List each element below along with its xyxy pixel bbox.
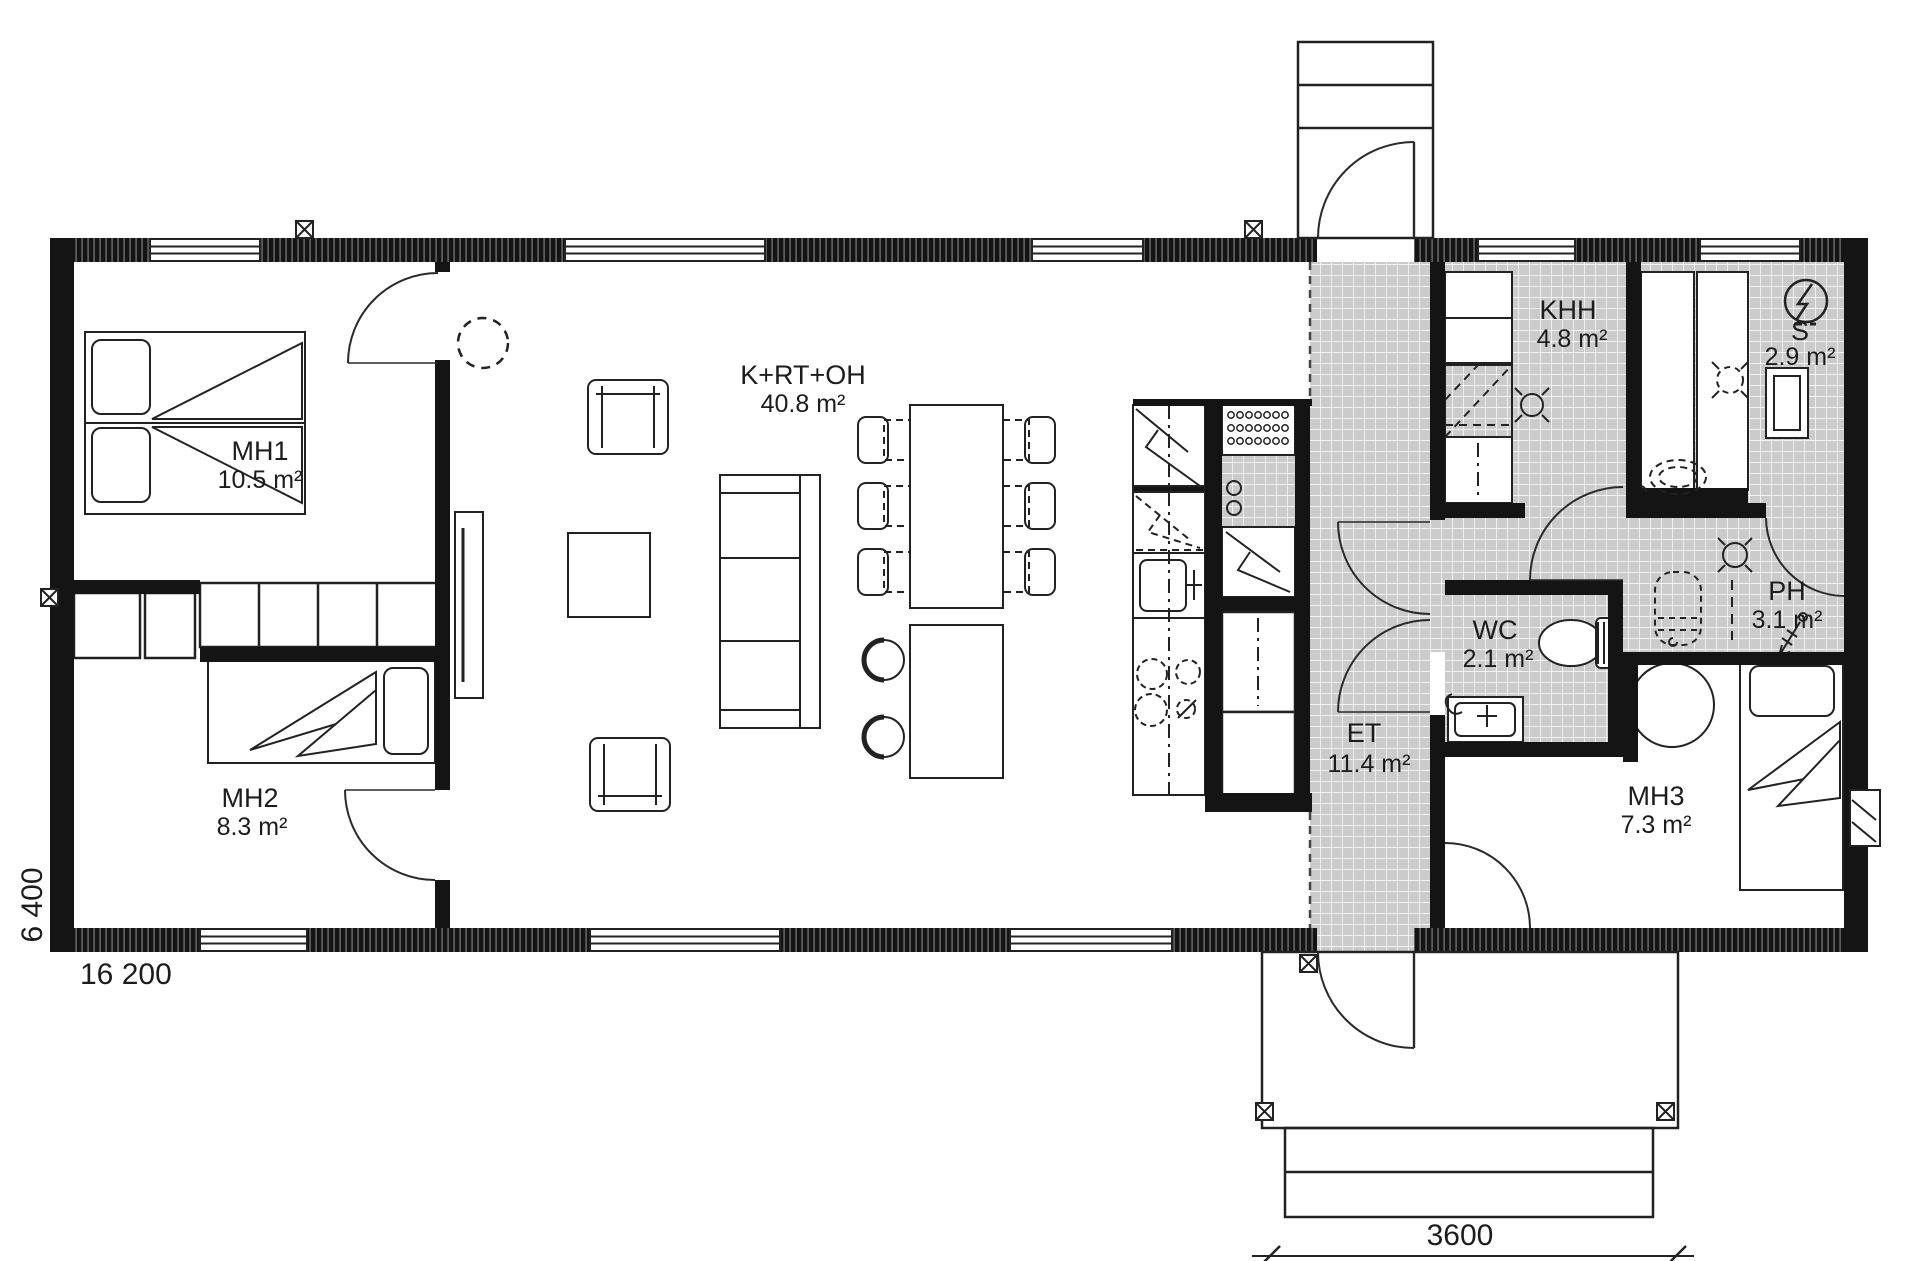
pillow — [92, 340, 150, 414]
svg-text:MH3: MH3 — [1627, 781, 1684, 811]
svg-text:7.3 m²: 7.3 m² — [1621, 811, 1692, 839]
utility-cabinet — [1445, 437, 1512, 503]
wall-closet-bottom — [200, 647, 450, 662]
post-marker-icon — [296, 221, 313, 238]
kitchen-right-wall — [1295, 405, 1310, 812]
kitchen-top-line — [1133, 399, 1312, 406]
wall-wc-bottom — [1445, 742, 1608, 757]
wall-mh1-mh2 — [74, 580, 200, 594]
svg-text:3.1 m²: 3.1 m² — [1752, 606, 1823, 634]
post-marker-icon — [1256, 1103, 1273, 1120]
hall-closets — [1222, 612, 1295, 800]
kitchen-divider-wall — [1205, 405, 1222, 795]
entry-porch-top — [1298, 42, 1433, 238]
kitchen-bottom-wall — [1205, 793, 1312, 812]
svg-text:2.1 m²: 2.1 m² — [1463, 645, 1534, 673]
room-label-mh2: MH2 8.3 m² — [217, 783, 288, 841]
wardrobe-row-mh1 — [200, 583, 437, 647]
wall-sauna-bottom — [1626, 503, 1766, 518]
post-marker-icon — [1245, 221, 1262, 238]
window-bottom-living — [590, 929, 780, 951]
pillow — [92, 428, 150, 502]
window-bottom-hall — [1010, 929, 1172, 951]
dishwasher — [1222, 527, 1295, 597]
wall — [435, 880, 450, 928]
window-top-mh1 — [150, 239, 260, 261]
sauna-bench — [1641, 272, 1694, 490]
dim-6400: 6 400 — [16, 867, 49, 942]
tv-bench — [455, 512, 483, 698]
window-top-khh — [1478, 239, 1575, 261]
svg-text:11.4 m²: 11.4 m² — [1328, 750, 1411, 778]
wall-bedrooms-living — [435, 360, 450, 790]
post-marker-icon — [41, 589, 58, 606]
wall-mh3-nook — [1623, 652, 1638, 762]
svg-text:4.8 m²: 4.8 m² — [1537, 325, 1608, 353]
pillow — [384, 668, 428, 754]
bar-table — [910, 625, 1003, 778]
svg-text:PH: PH — [1768, 576, 1806, 606]
wall-wc-top — [1445, 580, 1623, 595]
floor-plan-svg: MH1 10.5 m² MH2 8.3 m² K+RT+OH 40.8 m² E… — [0, 0, 1920, 1261]
svg-text:2.9 m²: 2.9 m² — [1765, 343, 1836, 371]
svg-text:K+RT+OH: K+RT+OH — [740, 360, 866, 390]
toilet — [1539, 618, 1618, 668]
armchair-2 — [590, 738, 670, 811]
svg-text:10.5 m²: 10.5 m² — [218, 466, 303, 494]
exterior-wall-bottom — [50, 928, 1868, 952]
entry-door-gap-top — [1317, 238, 1414, 262]
kitchen-block-band — [1222, 597, 1295, 612]
svg-text:MH1: MH1 — [231, 436, 288, 466]
svg-text:WC: WC — [1473, 615, 1518, 645]
wc-sink — [1446, 694, 1523, 742]
room-label-mh3: MH3 7.3 m² — [1621, 781, 1692, 839]
post-marker-icon — [1657, 1103, 1674, 1120]
wall-khh-sauna — [1626, 262, 1641, 518]
window-top-sauna — [1700, 239, 1800, 261]
coffee-table — [568, 533, 650, 617]
pillow — [1750, 666, 1834, 716]
svg-text:ET: ET — [1347, 718, 1382, 748]
svg-text:3600: 3600 — [1427, 1219, 1494, 1252]
dining-table — [910, 405, 1003, 608]
entry-door-gap-bottom — [1317, 928, 1414, 952]
svg-text:40.8 m²: 40.8 m² — [761, 390, 846, 418]
utility-counter — [1445, 272, 1512, 363]
kitchen-niche-tile — [1222, 455, 1295, 527]
wall-ph-mh3 — [1623, 652, 1844, 665]
wardrobe-mh2 — [74, 593, 195, 658]
window-top-kitchen — [1032, 239, 1143, 261]
window-top-living — [565, 239, 765, 261]
vent-marker-icon — [1850, 790, 1880, 846]
round-table — [1630, 663, 1714, 747]
post-marker-icon — [1300, 955, 1317, 972]
wall-wc-right — [1608, 580, 1623, 757]
dim-16200: 16 200 — [80, 958, 172, 991]
sofa — [720, 475, 820, 728]
wall-corridor-right-upper — [1430, 262, 1445, 520]
svg-text:KHH: KHH — [1539, 295, 1596, 325]
svg-text:8.3 m²: 8.3 m² — [217, 813, 288, 841]
sauna-heater — [1766, 368, 1808, 438]
exterior-wall-top — [50, 238, 1868, 262]
svg-text:S: S — [1791, 316, 1809, 346]
wall — [435, 262, 450, 272]
wall-corridor-right-lower — [1430, 715, 1445, 928]
window-bottom-mh2 — [200, 929, 307, 951]
sauna-bench — [1697, 272, 1748, 490]
entry-tile-floor — [1310, 262, 1430, 928]
svg-text:MH2: MH2 — [221, 783, 278, 813]
armchair — [588, 380, 668, 454]
wall-khh-bottom — [1445, 503, 1525, 518]
